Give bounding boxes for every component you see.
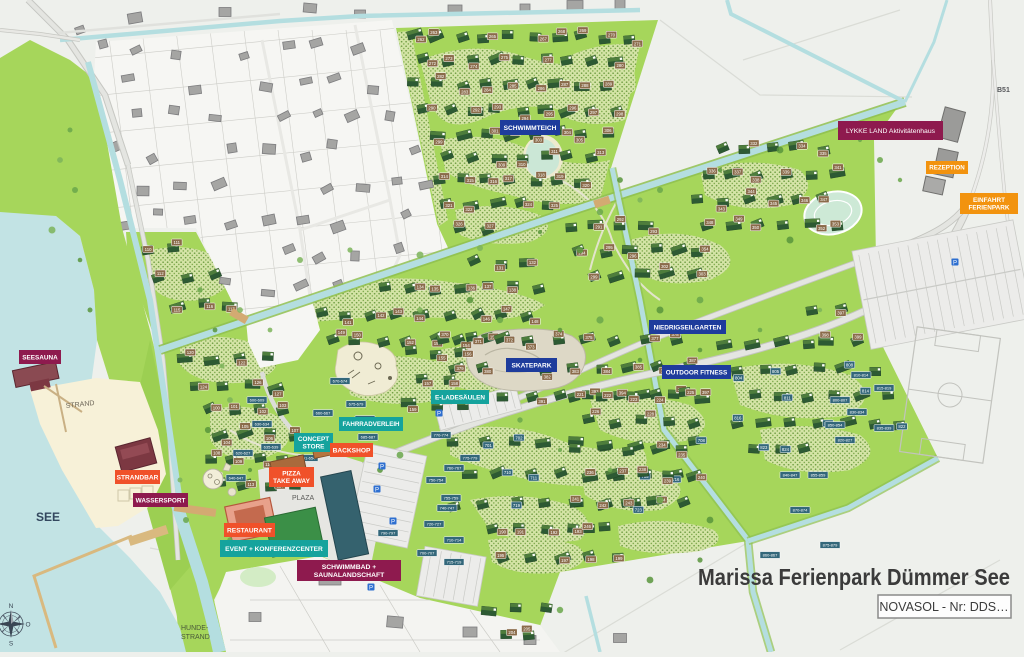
svg-text:127: 127 [274,392,282,397]
svg-text:824: 824 [782,447,790,452]
svg-text:347: 347 [820,197,828,202]
svg-text:111: 111 [174,240,181,245]
svg-text:RESTAURANT: RESTAURANT [227,527,272,534]
svg-text:137: 137 [484,284,492,289]
svg-text:816: 816 [734,416,742,421]
svg-text:142: 142 [377,313,385,318]
svg-text:740-747: 740-747 [440,506,455,511]
svg-text:104: 104 [223,440,231,445]
svg-text:305: 305 [576,137,584,142]
svg-text:225: 225 [687,390,695,395]
svg-text:284: 284 [484,88,492,93]
svg-text:124: 124 [200,384,208,389]
svg-text:282: 282 [437,74,445,79]
svg-text:700-707: 700-707 [420,551,435,556]
svg-text:710-714: 710-714 [447,538,462,543]
svg-text:100: 100 [213,405,221,410]
svg-text:840-847: 840-847 [783,473,798,478]
svg-text:760-767: 760-767 [447,466,462,471]
svg-text:319: 319 [556,174,564,179]
svg-text:263: 263 [430,30,438,35]
svg-text:115: 115 [174,307,181,312]
svg-text:820-827: 820-827 [838,438,853,443]
svg-text:EVENT + KONFERENZCENTER: EVENT + KONFERENZCENTER [225,546,323,553]
svg-text:143: 143 [395,309,403,314]
svg-text:790-797: 790-797 [381,531,396,536]
svg-text:144: 144 [416,316,424,321]
svg-text:242: 242 [599,503,607,508]
svg-text:FAHRRADVERLEIH: FAHRRADVERLEIH [342,421,400,428]
svg-text:146: 146 [483,317,491,322]
svg-text:HUNDE-: HUNDE- [181,625,209,632]
svg-text:660-667: 660-667 [316,411,331,416]
svg-text:221: 221 [577,392,585,397]
svg-text:285: 285 [509,83,517,88]
svg-text:131: 131 [496,266,504,271]
svg-text:860-867: 860-867 [763,553,778,558]
svg-text:318: 318 [538,173,546,178]
svg-text:711: 711 [530,475,537,480]
svg-text:SEE: SEE [36,510,60,524]
svg-text:374: 374 [555,332,563,337]
svg-text:112: 112 [157,271,164,276]
svg-text:314: 314 [441,174,449,179]
svg-text:193: 193 [575,529,583,534]
svg-text:147: 147 [503,307,511,312]
svg-text:327: 327 [487,224,495,229]
svg-text:126: 126 [254,380,262,385]
svg-text:287: 287 [561,82,569,87]
svg-text:303: 303 [535,138,543,143]
svg-text:199: 199 [615,556,623,561]
svg-text:397: 397 [837,311,845,316]
svg-text:382: 382 [544,375,552,380]
svg-text:236: 236 [587,470,595,475]
svg-text:157: 157 [424,381,432,386]
svg-text:620-627: 620-627 [236,451,251,456]
svg-text:870-874: 870-874 [793,508,808,513]
svg-text:379: 379 [457,366,465,371]
svg-text:135: 135 [431,286,439,291]
svg-text:719: 719 [513,503,521,508]
svg-text:P: P [375,487,379,493]
svg-text:S: S [9,641,14,648]
svg-text:297: 297 [590,110,598,115]
svg-text:326: 326 [456,222,464,227]
svg-text:352: 352 [818,226,826,231]
svg-text:105: 105 [242,424,250,429]
svg-text:150: 150 [354,333,362,338]
svg-text:708: 708 [698,438,706,443]
svg-text:800-807: 800-807 [833,398,848,403]
svg-text:P: P [380,464,384,470]
svg-text:P: P [391,519,395,525]
svg-text:241: 241 [572,497,580,502]
svg-text:101: 101 [231,404,239,409]
svg-text:149: 149 [338,330,346,335]
svg-text:197: 197 [561,558,569,563]
svg-text:322: 322 [465,207,473,212]
svg-text:STRANDBAR: STRANDBAR [117,474,159,481]
svg-text:STRAND: STRAND [181,634,210,641]
svg-text:815-819: 815-819 [877,386,892,391]
svg-text:TAKE AWAY: TAKE AWAY [273,478,310,485]
svg-text:377: 377 [651,336,659,341]
svg-text:313: 313 [597,150,605,155]
svg-text:293: 293 [650,229,658,234]
svg-text:228: 228 [647,411,655,416]
svg-text:295: 295 [606,245,614,250]
svg-text:310: 310 [518,162,526,167]
svg-text:195: 195 [497,553,505,558]
svg-text:640-647: 640-647 [229,476,244,481]
svg-text:109: 109 [235,459,243,464]
svg-text:296: 296 [569,106,577,111]
svg-text:205: 205 [523,626,531,631]
svg-text:299: 299 [590,274,598,279]
svg-text:345: 345 [770,201,778,206]
svg-text:PIZZA: PIZZA [282,471,301,478]
svg-text:391: 391 [538,399,546,404]
svg-text:240: 240 [698,475,706,480]
svg-text:152: 152 [407,340,415,345]
svg-text:238: 238 [639,467,647,472]
svg-text:804: 804 [735,376,743,381]
svg-text:332: 332 [750,141,758,146]
svg-text:NIEDRIGSEILGARTEN: NIEDRIGSEILGARTEN [654,324,722,331]
svg-text:770-774: 770-774 [434,433,449,438]
svg-text:134: 134 [417,284,425,289]
svg-text:321: 321 [445,203,453,208]
svg-text:275: 275 [501,55,509,60]
svg-text:154: 154 [463,343,471,348]
svg-text:NOVASOL - Nr: DDS…: NOVASOL - Nr: DDS… [879,600,1008,614]
svg-text:635-639: 635-639 [264,445,279,450]
svg-text:373: 373 [527,344,535,349]
svg-text:723: 723 [635,508,643,513]
svg-text:235: 235 [678,452,686,457]
svg-text:262: 262 [417,37,425,42]
svg-text:P: P [953,260,957,266]
svg-text:292: 292 [473,108,481,113]
svg-text:107: 107 [291,428,299,433]
svg-text:685-687: 685-687 [361,435,376,440]
svg-text:814: 814 [862,389,870,394]
svg-text:296: 296 [629,254,637,259]
svg-text:336: 336 [709,169,717,174]
svg-text:CONCEPT: CONCEPT [298,436,329,443]
svg-text:269: 269 [579,28,587,33]
svg-text:192: 192 [550,530,558,535]
svg-text:110: 110 [145,247,152,252]
svg-text:316: 316 [490,179,498,184]
svg-text:293: 293 [494,105,502,110]
svg-text:354: 354 [701,247,709,252]
svg-text:159: 159 [409,407,417,412]
svg-text:WASSERSPORT: WASSERSPORT [136,497,186,504]
svg-text:243: 243 [625,500,633,505]
svg-text:810-814: 810-814 [854,373,869,378]
svg-text:BACKSHOP: BACKSHOP [333,447,371,454]
svg-text:387: 387 [689,358,697,363]
svg-text:875-879: 875-879 [823,543,838,548]
svg-text:198: 198 [587,557,595,562]
svg-text:317: 317 [505,176,513,181]
svg-text:289: 289 [605,82,613,87]
svg-text:141: 141 [344,320,352,325]
svg-text:715-719: 715-719 [447,560,462,565]
svg-text:116: 116 [206,304,213,309]
svg-text:Marissa Ferienpark Dümmer See: Marissa Ferienpark Dümmer See [698,564,1010,590]
svg-text:325: 325 [551,203,559,208]
svg-text:SEESAUNA: SEESAUNA [22,354,58,361]
svg-text:811: 811 [784,395,791,400]
svg-text:223: 223 [630,397,638,402]
svg-text:299: 299 [435,140,443,145]
svg-text:156: 156 [464,352,472,357]
svg-text:102: 102 [259,409,267,414]
svg-text:B51: B51 [997,87,1010,94]
svg-text:338: 338 [752,177,760,182]
svg-text:106: 106 [266,436,274,441]
svg-text:304: 304 [564,130,572,135]
svg-text:383: 383 [572,369,580,374]
svg-text:280: 280 [617,63,625,68]
svg-text:600-609: 600-609 [250,398,265,403]
svg-text:353: 353 [832,221,840,226]
svg-text:267: 267 [540,36,548,41]
svg-text:148: 148 [531,319,539,324]
svg-text:720-727: 720-727 [427,522,442,527]
svg-text:136: 136 [468,285,476,290]
svg-text:301: 301 [491,128,499,133]
svg-text:OUTDOOR FITNESS: OUTDOOR FITNESS [666,369,728,376]
svg-text:N: N [9,603,14,610]
svg-text:298: 298 [616,112,624,117]
svg-text:397: 397 [702,390,710,395]
svg-text:375: 375 [585,335,593,340]
svg-text:850-854: 850-854 [828,423,843,428]
svg-text:103: 103 [279,403,287,408]
svg-text:REZEPTION: REZEPTION [929,165,965,172]
svg-text:272: 272 [429,61,437,66]
svg-text:306: 306 [604,128,612,133]
svg-text:SCHWIMMBAD +: SCHWIMMBAD + [322,564,377,571]
svg-text:268: 268 [558,29,566,34]
svg-text:630-634: 630-634 [255,422,270,427]
svg-text:349: 349 [735,216,743,221]
svg-text:274: 274 [470,64,478,69]
svg-text:283: 283 [461,89,469,94]
svg-text:273: 273 [445,56,453,61]
svg-text:830-834: 830-834 [850,410,865,415]
svg-text:348: 348 [706,220,714,225]
svg-text:122: 122 [238,360,246,365]
svg-text:113: 113 [247,482,254,487]
svg-text:E-LADESÄULEN: E-LADESÄULEN [435,393,485,401]
svg-text:335: 335 [820,151,828,156]
svg-text:394: 394 [619,391,627,396]
svg-text:270: 270 [608,32,616,37]
svg-text:204: 204 [508,630,516,635]
svg-text:823: 823 [760,445,768,450]
svg-text:372: 372 [506,337,514,342]
svg-text:855-859: 855-859 [811,473,826,478]
svg-text:346: 346 [801,198,809,203]
svg-text:344: 344 [748,189,756,194]
svg-text:291: 291 [595,225,603,230]
svg-text:P: P [369,585,373,591]
svg-text:343: 343 [718,206,726,211]
svg-text:805: 805 [772,369,780,374]
svg-text:155: 155 [438,356,446,361]
svg-text:120: 120 [187,350,195,355]
svg-text:286: 286 [538,86,546,91]
svg-text:288: 288 [581,83,589,88]
svg-text:O: O [25,621,30,628]
svg-text:222: 222 [604,393,612,398]
svg-text:371: 371 [475,339,483,344]
svg-text:295: 295 [546,112,554,117]
svg-text:SAUNALANDSCHAFT: SAUNALANDSCHAFT [314,572,385,579]
svg-text:350: 350 [752,225,760,230]
svg-text:710: 710 [504,470,512,475]
svg-text:808: 808 [846,362,854,367]
svg-text:158: 158 [451,381,459,386]
svg-text:341: 341 [834,165,842,170]
svg-text:822: 822 [898,424,906,429]
svg-text:399: 399 [854,335,862,340]
svg-text:334: 334 [798,144,806,149]
svg-text:SKATEPARK: SKATEPARK [511,362,551,369]
svg-text:190: 190 [499,530,507,535]
svg-text:675-679: 675-679 [349,402,364,407]
svg-text:324: 324 [525,202,533,207]
svg-text:701: 701 [485,443,493,448]
svg-text:315: 315 [467,178,475,183]
svg-text:132: 132 [529,260,537,265]
svg-text:SCHWIMMTEICH: SCHWIMMTEICH [504,125,557,132]
svg-text:290: 290 [428,105,436,110]
svg-text:237: 237 [619,469,627,474]
svg-text:292: 292 [617,217,625,222]
svg-text:702: 702 [515,435,523,440]
svg-text:246: 246 [584,524,592,529]
svg-text:835-839: 835-839 [877,426,892,431]
svg-text:191: 191 [517,530,525,535]
svg-text:265: 265 [489,34,497,39]
svg-text:234: 234 [659,442,667,447]
svg-text:138: 138 [509,288,517,293]
svg-text:PLAZA: PLAZA [292,495,315,502]
svg-text:LYKKE LAND Aktivitätenhaus: LYKKE LAND Aktivitätenhaus [846,128,936,135]
svg-text:EINFAHRT: EINFAHRT [973,197,1005,204]
svg-text:384: 384 [603,369,611,374]
svg-text:309: 309 [498,162,506,167]
svg-text:370: 370 [441,332,449,337]
svg-text:750-754: 750-754 [429,478,444,483]
svg-text:271: 271 [634,41,642,46]
svg-text:STORE: STORE [303,444,326,451]
svg-text:226: 226 [592,409,600,414]
svg-text:108: 108 [213,451,221,456]
svg-text:277: 277 [545,58,553,63]
svg-text:239: 239 [664,479,672,484]
svg-text:P: P [437,411,441,417]
svg-text:320: 320 [582,183,590,188]
svg-text:755-759: 755-759 [444,496,459,501]
svg-text:FERIENPARK: FERIENPARK [968,205,1009,212]
svg-text:670-674: 670-674 [333,379,348,384]
svg-text:302: 302 [661,264,669,269]
svg-text:398: 398 [822,332,830,337]
svg-text:339: 339 [782,170,790,175]
svg-text:224: 224 [656,398,664,403]
svg-text:311: 311 [551,149,558,154]
svg-text:303: 303 [699,272,707,277]
svg-text:337: 337 [734,169,742,174]
svg-text:385: 385 [635,365,643,370]
svg-text:775-779: 775-779 [463,456,478,461]
svg-text:380: 380 [484,369,492,374]
